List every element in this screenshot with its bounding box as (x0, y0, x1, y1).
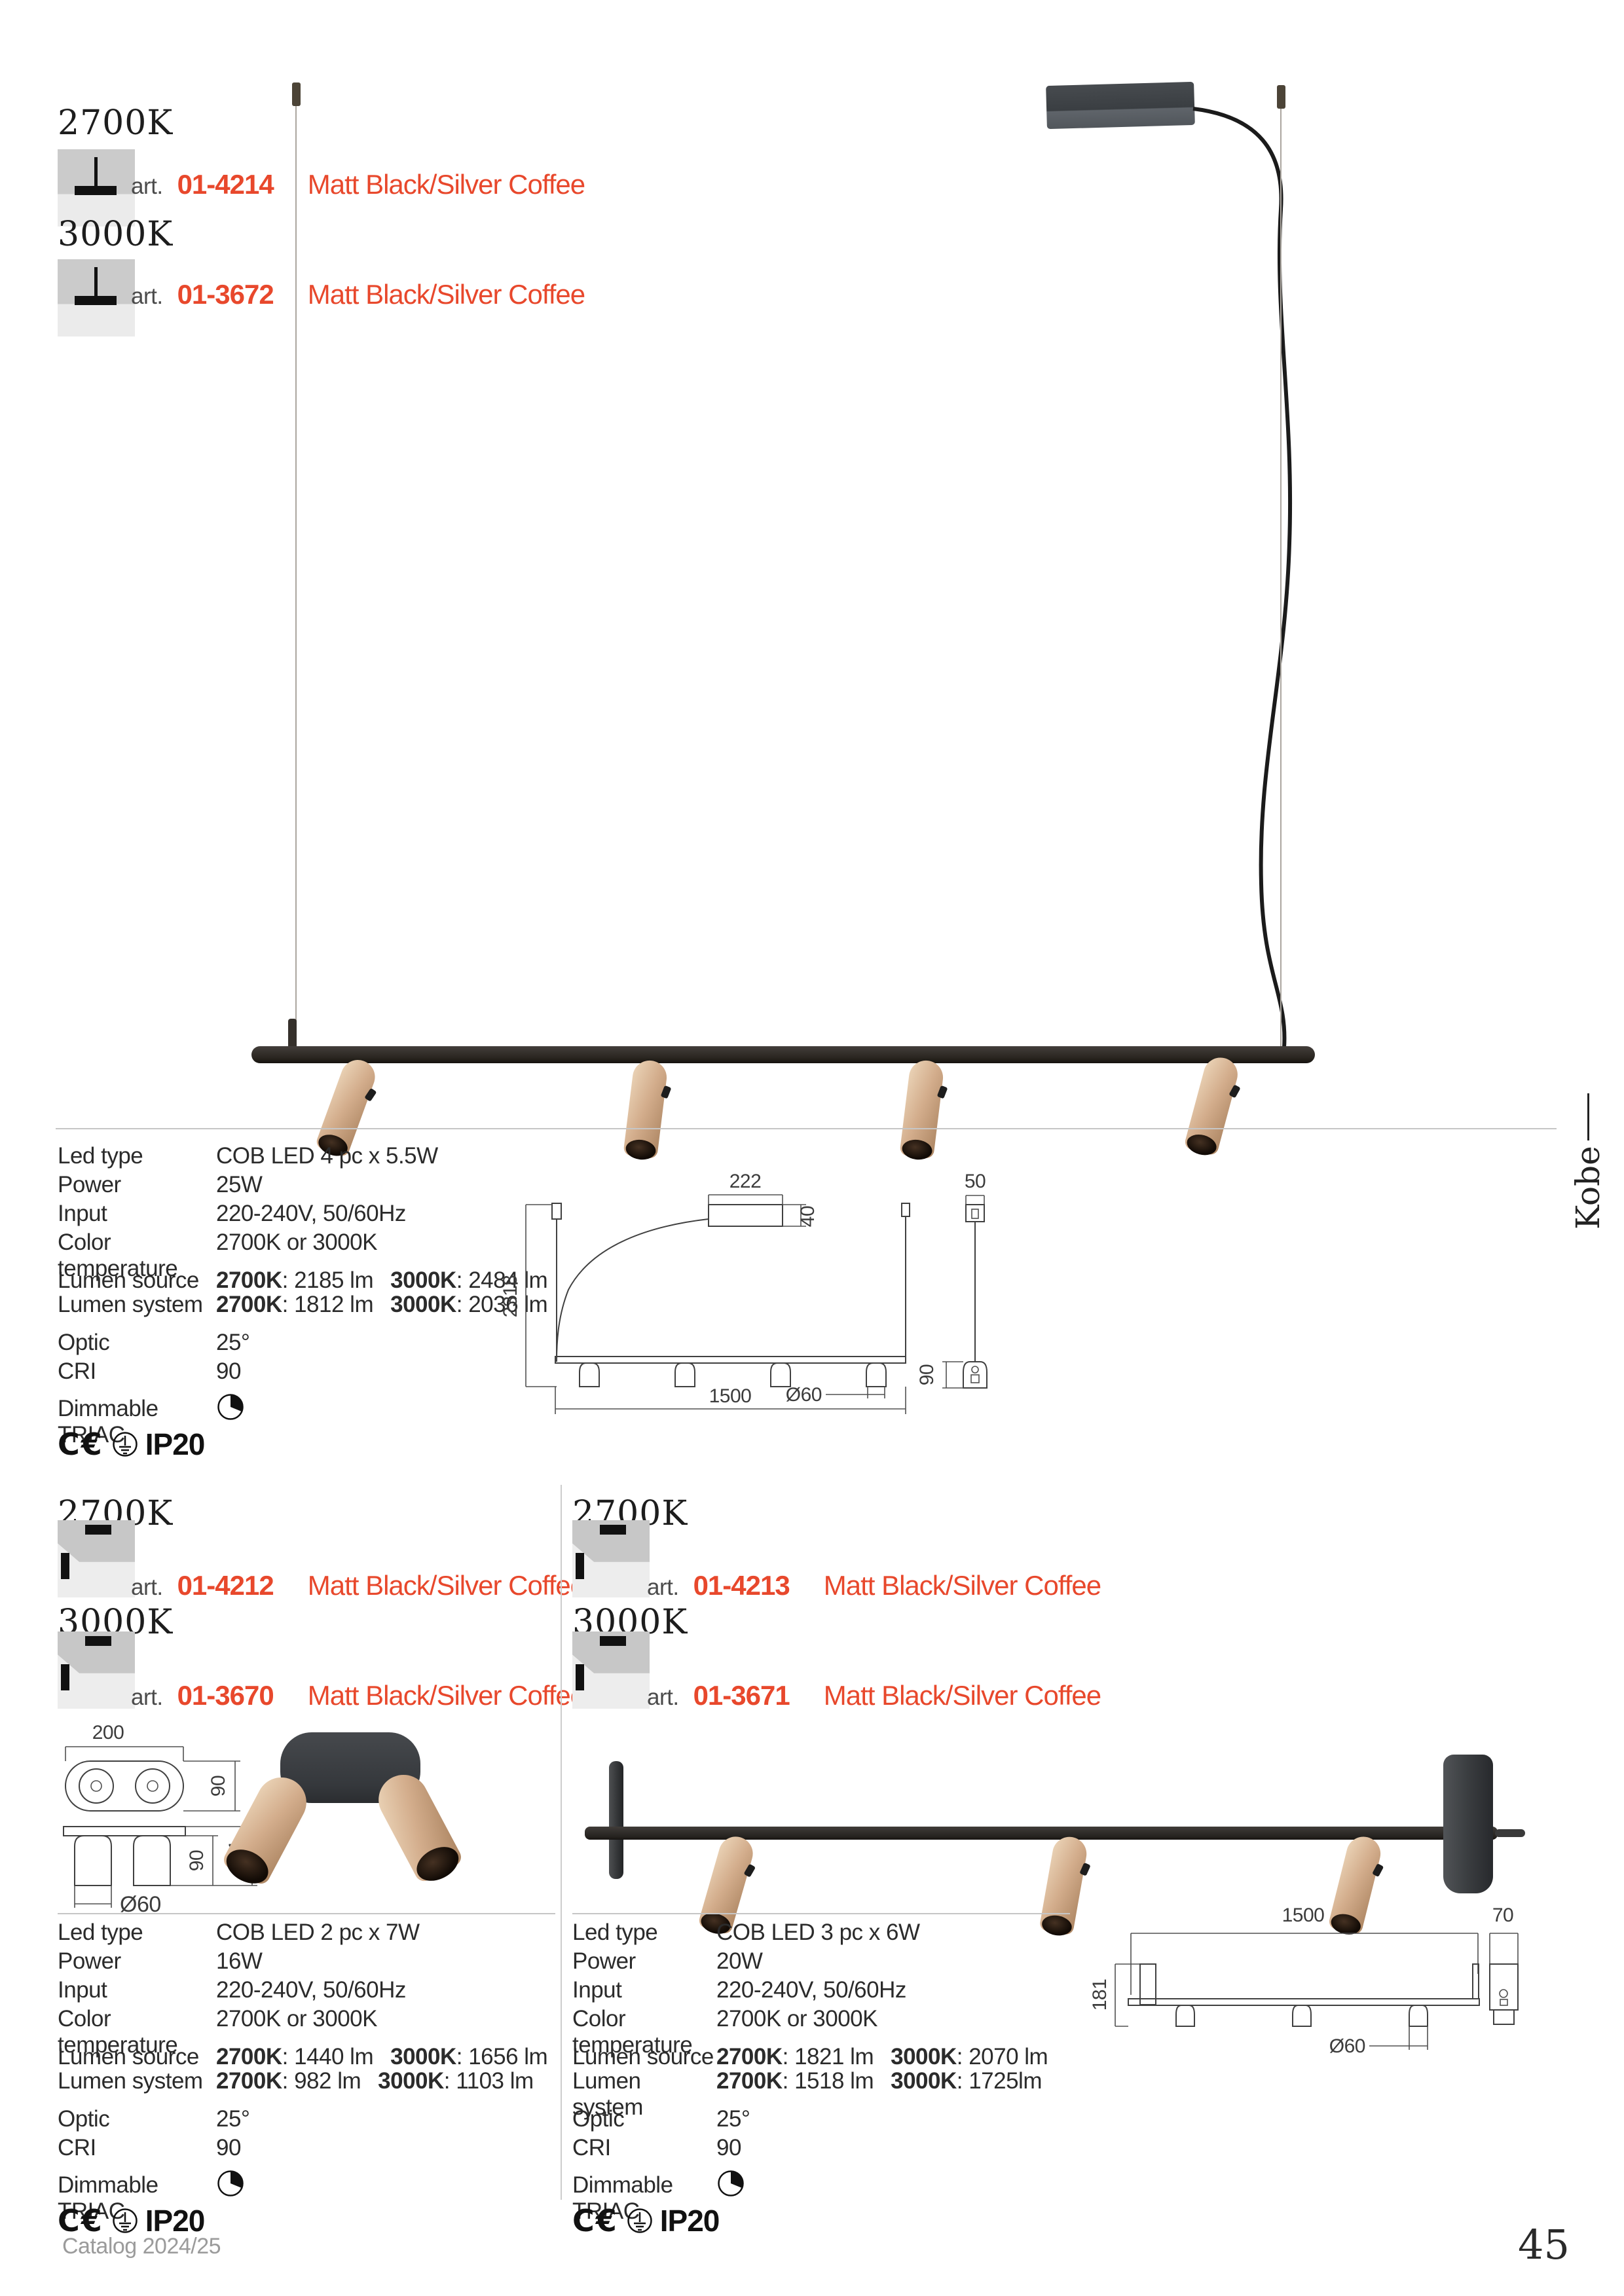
dim-spot-height: 90 (186, 1850, 208, 1871)
dim-canopy-width: 222 (729, 1171, 762, 1192)
art-label: art. (131, 173, 163, 200)
br-variant-1-art: art. 01-4213 Matt Black/Silver Coffee (647, 1570, 1101, 1601)
dim-diameter: Ø60 (1329, 2035, 1365, 2057)
right-suspension-wire (1280, 109, 1282, 1048)
top-variant-2-thumbnail (58, 259, 135, 337)
ce-mark: C€ (58, 1427, 103, 1462)
dim-drop-height: 2318 (500, 1275, 521, 1318)
br-photo-ceiling-cylinder (1443, 1755, 1493, 1893)
dimmable-icon (216, 2169, 245, 2198)
pendant-bar (251, 1046, 1315, 1063)
family-name-underscore (1587, 1093, 1589, 1140)
br-photo-bar-stub (1495, 1829, 1525, 1837)
dim-side-width: 70 (1492, 1904, 1513, 1926)
dim-side-width: 50 (965, 1171, 986, 1192)
earth-class-icon (111, 1430, 139, 1458)
certification-row: C€ IP20 (572, 2203, 1411, 2238)
dim-total-height: 181 (1089, 1979, 1111, 2011)
bl-variant-1-art: art. 01-4212 Matt Black/Silver Coffee (131, 1570, 585, 1601)
catalog-page: 2700K art. 01-4214 Matt Black/Silver Cof… (0, 0, 1624, 2296)
spec-row-dimmable: Dimmable TRIAC (572, 2164, 1411, 2196)
left-suspension-wire (295, 106, 297, 1048)
pendant-thumb-bar (75, 186, 117, 195)
pendant-spot-3 (899, 1059, 945, 1159)
spec-row-cri: CRI90 (572, 2135, 1411, 2164)
family-name: Kobe (1569, 1146, 1607, 1230)
right-wire-fitting (1277, 85, 1285, 109)
spec-row-optic: Optic25° (572, 2106, 1411, 2135)
br-variant-2-art: art. 01-3671 Matt Black/Silver Coffee (647, 1680, 1101, 1711)
left-wire-fitting (292, 82, 301, 106)
dim-bar-length: 1500 (1282, 1904, 1325, 1926)
pendant-thumb-bar (75, 296, 117, 305)
earth-class-icon (626, 2207, 654, 2234)
bl-variant-1-thumbnail (58, 1520, 135, 1597)
power-cable (1159, 98, 1356, 1061)
br-variant-1-thumbnail (572, 1520, 650, 1597)
bl-table-rule (58, 1913, 555, 1914)
br-photo-end-rod (609, 1761, 623, 1879)
art-code: 01-4214 (177, 169, 274, 200)
bl-variant-2-thumbnail (58, 1631, 135, 1709)
bl-variant-2-art: art. 01-3670 Matt Black/Silver Coffee (131, 1680, 585, 1711)
art-finish: Matt Black/Silver Coffee (308, 169, 585, 200)
top-variant-1-temp: 2700K (58, 103, 173, 143)
art-code: 01-3672 (177, 279, 274, 310)
dim-spot-height: 90 (916, 1364, 938, 1385)
top-variant-2-temp: 3000K (58, 215, 173, 254)
page-number: 45 (1518, 2221, 1570, 2269)
column-divider (561, 1485, 562, 2200)
br-variant-2-thumbnail (572, 1631, 650, 1709)
dim-depth: 90 (208, 1776, 229, 1796)
dim-canopy-height: 40 (797, 1206, 819, 1227)
dimmable-icon (216, 1393, 245, 1421)
family-name-vertical: Kobe (1569, 1093, 1607, 1230)
ip-rating: IP20 (145, 1427, 205, 1462)
wire-bar-joint (288, 1019, 297, 1050)
pendant-spot-4 (1183, 1054, 1242, 1156)
top-variant-2-art: art. 01-3672 Matt Black/Silver Coffee (131, 279, 585, 310)
dim-width: 200 (92, 1722, 124, 1743)
top-variant-1-art: art. 01-4214 Matt Black/Silver Coffee (131, 169, 585, 200)
pendant-thumb-stem (94, 267, 98, 296)
earth-class-icon (111, 2207, 139, 2234)
footer-catalog: Catalog 2024/25 (62, 2234, 221, 2259)
top-technical-drawing: 222 40 2318 1500 Ø60 50 (494, 1146, 1025, 1457)
br-technical-drawing: 1500 181 Ø60 70 (1084, 1895, 1549, 2085)
art-label: art. (131, 283, 163, 310)
section-divider-top (56, 1128, 1557, 1129)
dim-spot-diameter: Ø60 (786, 1384, 822, 1406)
art-finish: Matt Black/Silver Coffee (308, 279, 585, 310)
dim-bar-length: 1500 (709, 1385, 752, 1407)
pendant-thumb-stem (94, 157, 98, 186)
dimmable-icon (716, 2169, 745, 2198)
br-table-rule (572, 1913, 1070, 1914)
